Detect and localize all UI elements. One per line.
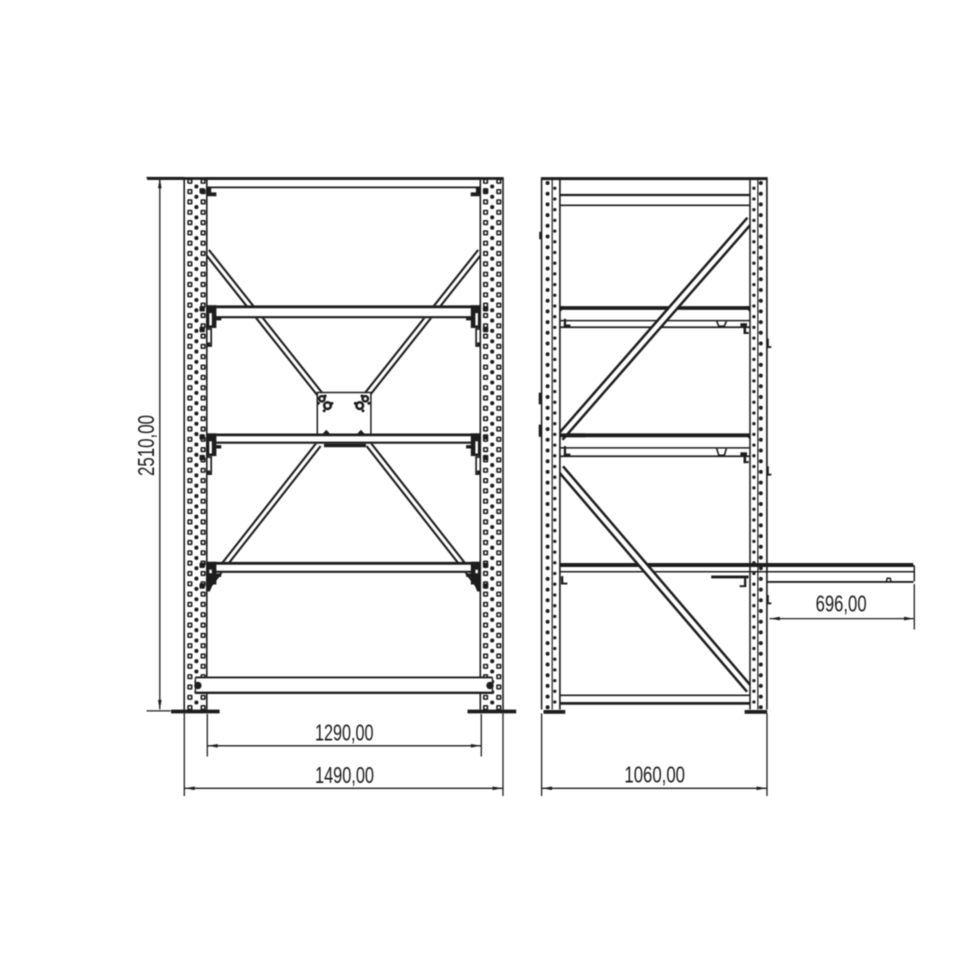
svg-text:1060,00: 1060,00: [624, 762, 685, 788]
svg-text:1290,00: 1290,00: [315, 720, 374, 746]
svg-text:696,00: 696,00: [816, 591, 867, 617]
svg-text:2510,00: 2510,00: [133, 415, 159, 476]
svg-text:1490,00: 1490,00: [315, 762, 374, 788]
